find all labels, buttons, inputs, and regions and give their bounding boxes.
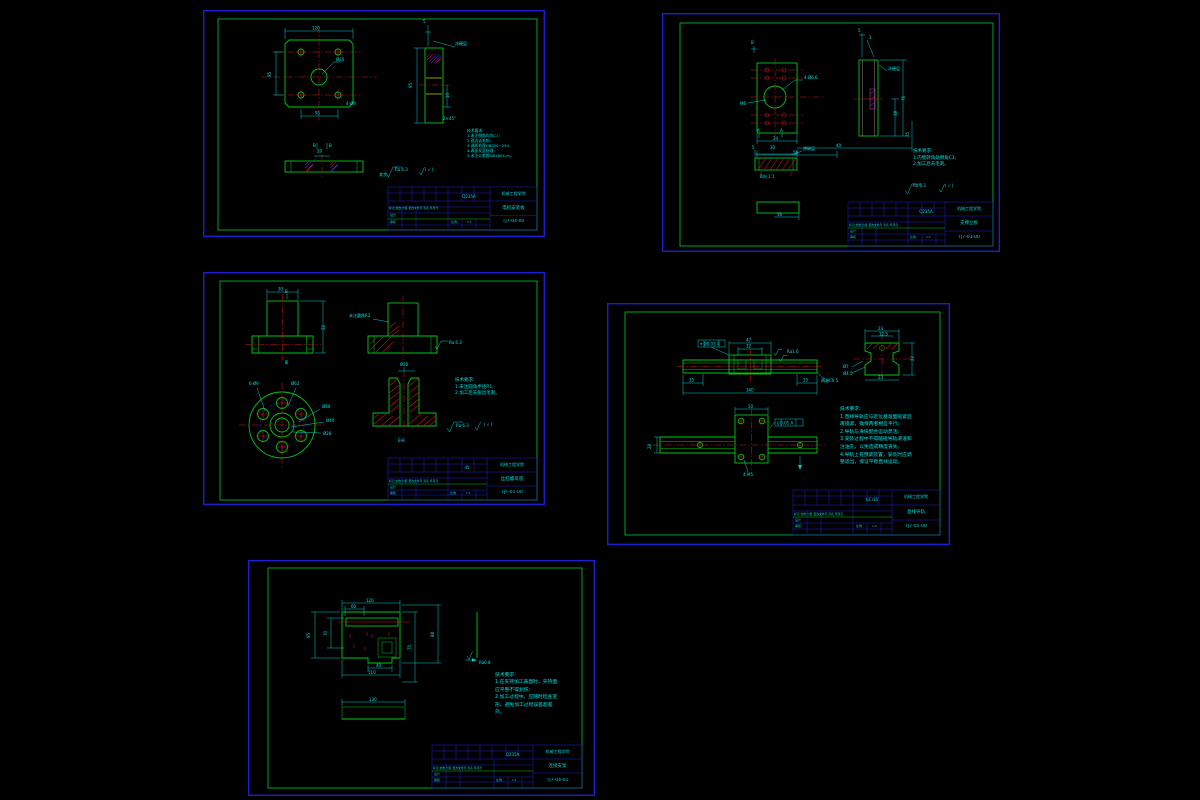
dim-label: 76: [901, 95, 906, 101]
dim-label: Ra 6.3: [456, 423, 469, 428]
dim-label: 4-Ø6.6: [804, 75, 818, 80]
note-line: 外。: [495, 709, 579, 716]
dim-label: Ø62: [291, 381, 300, 386]
bottom-bar-view: [342, 699, 405, 719]
dim-label: 32: [746, 344, 752, 349]
dim-label: Ø40: [326, 418, 335, 423]
part-name-cell: 连接支架: [534, 763, 581, 769]
scale-value: 1:2: [872, 524, 877, 528]
note-line: 整适当，保证平稳直线运动。: [840, 459, 944, 467]
dim-label: 30: [770, 145, 776, 150]
dim-label: 130: [369, 697, 377, 702]
dim-labels: 120609570758840110Ra0.8130: [306, 598, 491, 702]
dim-label: 340: [746, 388, 754, 393]
dim-label: 75: [407, 644, 412, 650]
note-line: 2.导轨与滑块配合运动灵活;: [840, 429, 944, 437]
dim-label: B: [285, 360, 288, 365]
section-view: [285, 143, 363, 179]
technical-notes: 技术要求: 1.内壁转角处倒角C1;2.加工后去毛刺。: [913, 149, 993, 169]
scale-value: 1:1: [466, 491, 471, 495]
part-name-cell: 支撑立板: [946, 220, 992, 226]
drawing-no-cell: TJ7-05-00: [893, 524, 939, 529]
dim-label: 淬硬层: [888, 65, 900, 71]
dim-label: 56: [793, 150, 799, 155]
dim-label: B向 1:1: [760, 173, 775, 179]
dim-label: ⌖ Ø0.01 A: [700, 342, 720, 347]
dim-label: Ø28: [323, 431, 332, 436]
dim-label: 30: [278, 287, 284, 292]
drawing-sheet-1[interactable]: 1209595Ø354-Ø95淬硬层95102×45°20BB其余Ra 6.3(…: [203, 10, 545, 237]
dim-labels: 1209595Ø354-Ø95淬硬层95102×45°20BB其余Ra 6.3(…: [267, 19, 467, 177]
header-row: 标记 处数 分区 更改文件号 签名 年月日: [433, 766, 530, 770]
dim-label: ( √ ): [945, 183, 954, 188]
flange-circular-view: [239, 382, 325, 468]
dim-label: A: [757, 128, 760, 133]
notes-title: 技术要求:: [840, 406, 944, 414]
dim-label: Ø4.5: [843, 371, 853, 376]
outer-frame: [663, 14, 1000, 252]
dim-label: 4-M5: [743, 472, 753, 477]
dim-label: 40: [376, 663, 382, 668]
front-view: [748, 46, 912, 158]
dim-label: 5: [752, 145, 755, 150]
header-row: 标记 处数 分区 更改文件号 签名 年月日: [794, 512, 890, 516]
part-name-cell: 丝杠螺母座: [488, 476, 536, 482]
note-line: 2.加工过程中，应随时检查变: [495, 694, 579, 701]
drawing-no-cell: TJ7-03-00: [946, 235, 992, 240]
material-cell: Q235A: [908, 209, 944, 214]
dim-label: 5: [423, 19, 426, 24]
school-cell: 机械工程学院: [893, 494, 939, 500]
dim-label: Ra1.6: [787, 349, 799, 354]
dim-label: 95: [315, 111, 321, 116]
note-line: 注油孔，以免造成精度丧失;: [840, 444, 944, 452]
check-label: 审核: [390, 220, 396, 224]
dim-label: 50: [748, 404, 754, 409]
inner-frame: [680, 23, 993, 246]
dim-label: 70: [323, 630, 328, 636]
dim-label: 两端C0.5: [821, 377, 839, 383]
side-edge-view: [465, 612, 477, 662]
school-cell: 机械工程学院: [488, 462, 536, 468]
design-label: 设计: [850, 229, 856, 233]
part-name-cell: 直线导轨: [893, 509, 939, 515]
technical-notes: 技术要求: 1.直线导轨应与定位基准面贴紧后再锁紧，确保两者相互平行;2.导轨与…: [840, 406, 944, 467]
front-view: [311, 600, 441, 682]
note-line: 2.加工后去毛刺。: [913, 162, 993, 169]
dim-label: 6-Ø9: [249, 381, 259, 386]
notes-lines: 1.在夹持加工表面时，夹持面应平整不得划伤;2.加工过程中，应随时检查变形，避免…: [495, 679, 579, 716]
dim-label: 20: [317, 149, 323, 154]
dim-label: ( √ ): [484, 422, 493, 427]
dim-label: 未注圆角R2: [349, 312, 371, 318]
technical-notes: 技术要求: 1.未注圆角半径R1;2.加工后去锐边毛刺。: [455, 378, 537, 398]
check-label: 审核: [390, 491, 396, 495]
note-line: 再锁紧，确保两者相互平行;: [840, 421, 944, 429]
check-label: 审核: [434, 778, 440, 782]
dim-label: 其余: [379, 171, 387, 177]
header-row: 标记 处数 分区 更改文件号 签名 年月日: [389, 206, 487, 210]
note-line: 3.安装过程中不得磕碰导轨滚道和: [840, 436, 944, 444]
dim-label: 38: [893, 110, 898, 116]
scale-value: 1:1: [926, 235, 931, 239]
side-view: [414, 25, 455, 123]
drawing-no-cell: TJ7-04-01: [534, 778, 581, 783]
rail-cross-section-view: [852, 329, 915, 383]
dim-label: M6: [740, 101, 746, 106]
dim-label: B: [313, 143, 316, 148]
section-bb-view: [373, 367, 436, 433]
scale-label: 比例: [496, 778, 502, 782]
dim-label: B: [329, 143, 332, 148]
dim-label: B-B: [398, 438, 405, 443]
part-name-cell: 电机安装板: [491, 205, 536, 211]
drawing-sheet-5[interactable]: 120609570758840110Ra0.8130 技术要求: 1.在夹持加工…: [248, 560, 595, 796]
dim-label: 95: [267, 71, 272, 77]
design-label: 设计: [390, 213, 396, 217]
material-cell: 45: [448, 465, 486, 470]
scale-label: 比例: [450, 491, 456, 495]
dim-label: 88: [430, 631, 435, 637]
dim-label: 15: [689, 378, 695, 383]
dim-label: 25: [905, 131, 910, 137]
drawing-sheet-3[interactable]: 30BB52未注圆角R2Ra 6.36-Ø9Ø62Ø80Ø40Ø28Ø20B-B…: [203, 272, 545, 505]
dim-label: 22: [910, 355, 915, 361]
inner-frame: [218, 19, 537, 230]
dim-label: 95: [408, 82, 413, 88]
dim-label: B: [751, 40, 754, 45]
dim-label: 5: [858, 28, 861, 33]
dim-label: 15: [803, 378, 809, 383]
dim-label: Ra0.8: [479, 660, 491, 665]
rail-plan-view: [652, 407, 825, 472]
notes-title: 技术要求:: [495, 672, 579, 679]
dim-label: 23: [878, 326, 884, 331]
design-label: 设计: [390, 485, 396, 489]
dim-label: 52: [321, 324, 326, 330]
notes-lines: 1.直线导轨应与定位基准面贴紧后再锁紧，确保两者相互平行;2.导轨与滑块配合运动…: [840, 414, 944, 467]
dim-label: 95: [306, 632, 311, 638]
school-cell: 机械工程学院: [946, 206, 992, 212]
dim-label: Ra 6.3: [449, 340, 462, 345]
technical-notes: 技术要求: 1.未注倒角均为C1;2.锐边去毛刺;3.调质处理HB220~250…: [467, 128, 539, 158]
scale-label: 比例: [451, 220, 457, 224]
dim-label: 28: [647, 443, 652, 449]
dim-label: 23: [878, 375, 884, 380]
dim-label: ∥ 0.01 A: [777, 421, 793, 426]
note-line: 1.在夹持加工表面时，夹持面: [495, 679, 579, 686]
dim-label: Ø7: [843, 364, 849, 369]
material-cell: GCr15: [854, 497, 890, 502]
cad-workspace[interactable]: { "app": {"background": "#000000"}, "col…: [0, 0, 1200, 800]
notes-lines: 1.未注圆角半径R1;2.加工后去锐边毛刺。: [455, 385, 537, 398]
dim-label: 淬硬层: [455, 40, 467, 46]
design-label: 设计: [434, 772, 440, 776]
material-cell: Q235A: [494, 752, 531, 757]
note-line: 4.导轨上有预紧装置，安装时应调: [840, 452, 944, 460]
header-row: 标记 处数 分区 更改文件号 签名 年月日: [849, 223, 943, 227]
side-view: [854, 33, 907, 136]
dim-label: ( √ ): [425, 167, 434, 172]
dim-label: Ø20: [400, 362, 409, 367]
note-line: 应平整不得划伤;: [495, 687, 579, 694]
dim-label: 3: [869, 35, 872, 40]
dim-label: 10: [445, 92, 450, 98]
drawing-no-cell: TJF-01-00: [488, 490, 536, 495]
design-label: 设计: [795, 518, 801, 522]
note-line: 5.未注公差按GB1804-m。: [467, 153, 539, 158]
side-section-view: [368, 296, 448, 360]
header-row: 标记 处数 分区 更改文件号 签名 年月日: [389, 479, 484, 483]
scale-label: 比例: [910, 235, 916, 239]
dim-label: 60: [351, 604, 357, 609]
dim-label: 120: [366, 598, 374, 603]
note-line: 形，避免加工过程误差超差: [495, 702, 579, 709]
front-view: [261, 26, 377, 122]
dim-labels: B4-Ø6.6M624402556AA53淬硬层3876530渗碳层B向 1:1…: [740, 28, 954, 217]
dim-label: 12.5: [879, 332, 888, 337]
scale-value: 1:1: [467, 220, 472, 224]
dim-label: 40: [836, 143, 842, 148]
dim-label: 120: [312, 26, 320, 31]
notes-lines: 1.内壁转角处倒角C1;2.加工后去毛刺。: [913, 156, 993, 169]
check-label: 审核: [795, 524, 801, 528]
dim-label: 56: [777, 212, 783, 217]
note-line: 1.直线导轨应与定位基准面贴紧后: [840, 414, 944, 422]
outer-frame: [204, 11, 545, 237]
dim-label: 110: [368, 670, 376, 675]
notes-lines: 1.未注倒角均为C1;2.锐边去毛刺;3.调质处理HB220~250;4.表面发…: [467, 133, 539, 158]
school-cell: 机械工程学院: [491, 191, 536, 197]
dim-label: 4-Ø9: [346, 101, 356, 106]
dim-labels: 30BB52未注圆角R2Ra 6.36-Ø9Ø62Ø80Ø40Ø28Ø20B-B…: [249, 287, 493, 444]
dim-label: 2×45°: [443, 116, 456, 121]
material-cell: Q235A: [449, 194, 489, 199]
dim-label: Ø80: [322, 404, 331, 409]
check-label: 审核: [850, 235, 856, 239]
drawing-no-cell: TJ7-04-00: [491, 219, 536, 224]
drawing-sheet-4[interactable]: 4732⌖ Ø0.01 ARa1.6两端C0.515153402312.5Ø7Ø…: [607, 303, 950, 545]
dim-label: 47: [746, 338, 752, 343]
school-cell: 机械工程学院: [534, 749, 581, 755]
front-view: [245, 289, 326, 365]
scale-value: 1:1: [512, 778, 517, 782]
bottom-bar-view: [757, 202, 799, 220]
sheet1-canvas: 1209595Ø354-Ø95淬硬层95102×45°20BB其余Ra 6.3(…: [203, 10, 545, 237]
dim-label: B: [285, 289, 288, 294]
dim-label: Ra 6.3: [395, 167, 408, 172]
note-line: 2.加工后去锐边毛刺。: [455, 391, 537, 398]
dim-label: 渗碳层: [803, 145, 815, 151]
dim-label: Ø35: [336, 57, 345, 62]
sheet2-canvas: B4-Ø6.6M624402556AA53淬硬层3876530渗碳层B向 1:1…: [662, 13, 1000, 252]
dim-label: 24: [773, 136, 779, 141]
dim-label: Ra 6.3: [913, 183, 926, 188]
dim-label: A: [780, 128, 783, 133]
drawing-sheet-2[interactable]: B4-Ø6.6M624402556AA53淬硬层3876530渗碳层B向 1:1…: [662, 13, 1000, 252]
technical-notes: 技术要求: 1.在夹持加工表面时，夹持面应平整不得划伤;2.加工过程中，应随时检…: [495, 672, 579, 716]
scale-label: 比例: [856, 524, 862, 528]
